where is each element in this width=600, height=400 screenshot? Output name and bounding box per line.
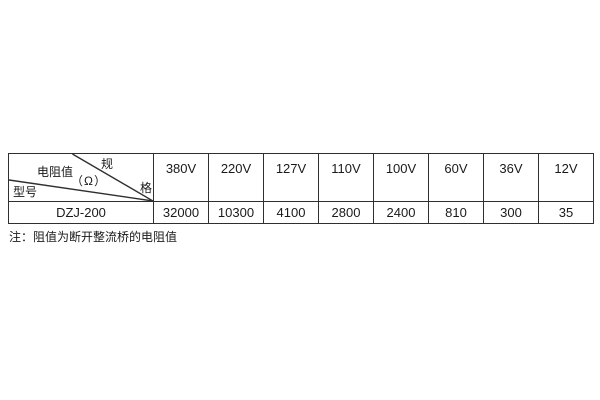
corner-spec-char-top: 规 [101, 158, 113, 170]
corner-resistance-unit: （Ω） [71, 175, 107, 187]
spec-table: 规 格 电阻值 （Ω） 型号 380V 220V 127V 110V 100V … [8, 153, 594, 224]
resistance-value-cell: 10300 [209, 202, 264, 224]
voltage-header-cell: 100V [374, 154, 429, 202]
voltage-header-cell: 220V [209, 154, 264, 202]
resistance-value-cell: 300 [484, 202, 539, 224]
resistance-value-cell: 4100 [264, 202, 319, 224]
footnote: 注：阻值为断开整流桥的电阻值 [9, 228, 177, 245]
resistance-value-cell: 35 [539, 202, 594, 224]
voltage-header-cell: 127V [264, 154, 319, 202]
corner-spec-char-bottom: 格 [140, 182, 152, 194]
table-data-row: DZJ-200 32000 10300 4100 2800 2400 810 3… [9, 202, 594, 224]
resistance-value-cell: 810 [429, 202, 484, 224]
table-header-row: 规 格 电阻值 （Ω） 型号 380V 220V 127V 110V 100V … [9, 154, 594, 202]
voltage-header-cell: 36V [484, 154, 539, 202]
page: 规 格 电阻值 （Ω） 型号 380V 220V 127V 110V 100V … [0, 0, 600, 400]
voltage-header-cell: 380V [154, 154, 209, 202]
resistance-value-cell: 2800 [319, 202, 374, 224]
voltage-header-cell: 12V [539, 154, 594, 202]
diagonal-corner-cell: 规 格 电阻值 （Ω） 型号 [9, 154, 154, 202]
corner-model-label: 型号 [13, 186, 37, 198]
voltage-header-cell: 60V [429, 154, 484, 202]
resistance-value-cell: 2400 [374, 202, 429, 224]
resistance-value-cell: 32000 [154, 202, 209, 224]
voltage-header-cell: 110V [319, 154, 374, 202]
corner-resistance-label: 电阻值 [37, 166, 73, 178]
model-cell: DZJ-200 [9, 202, 154, 224]
